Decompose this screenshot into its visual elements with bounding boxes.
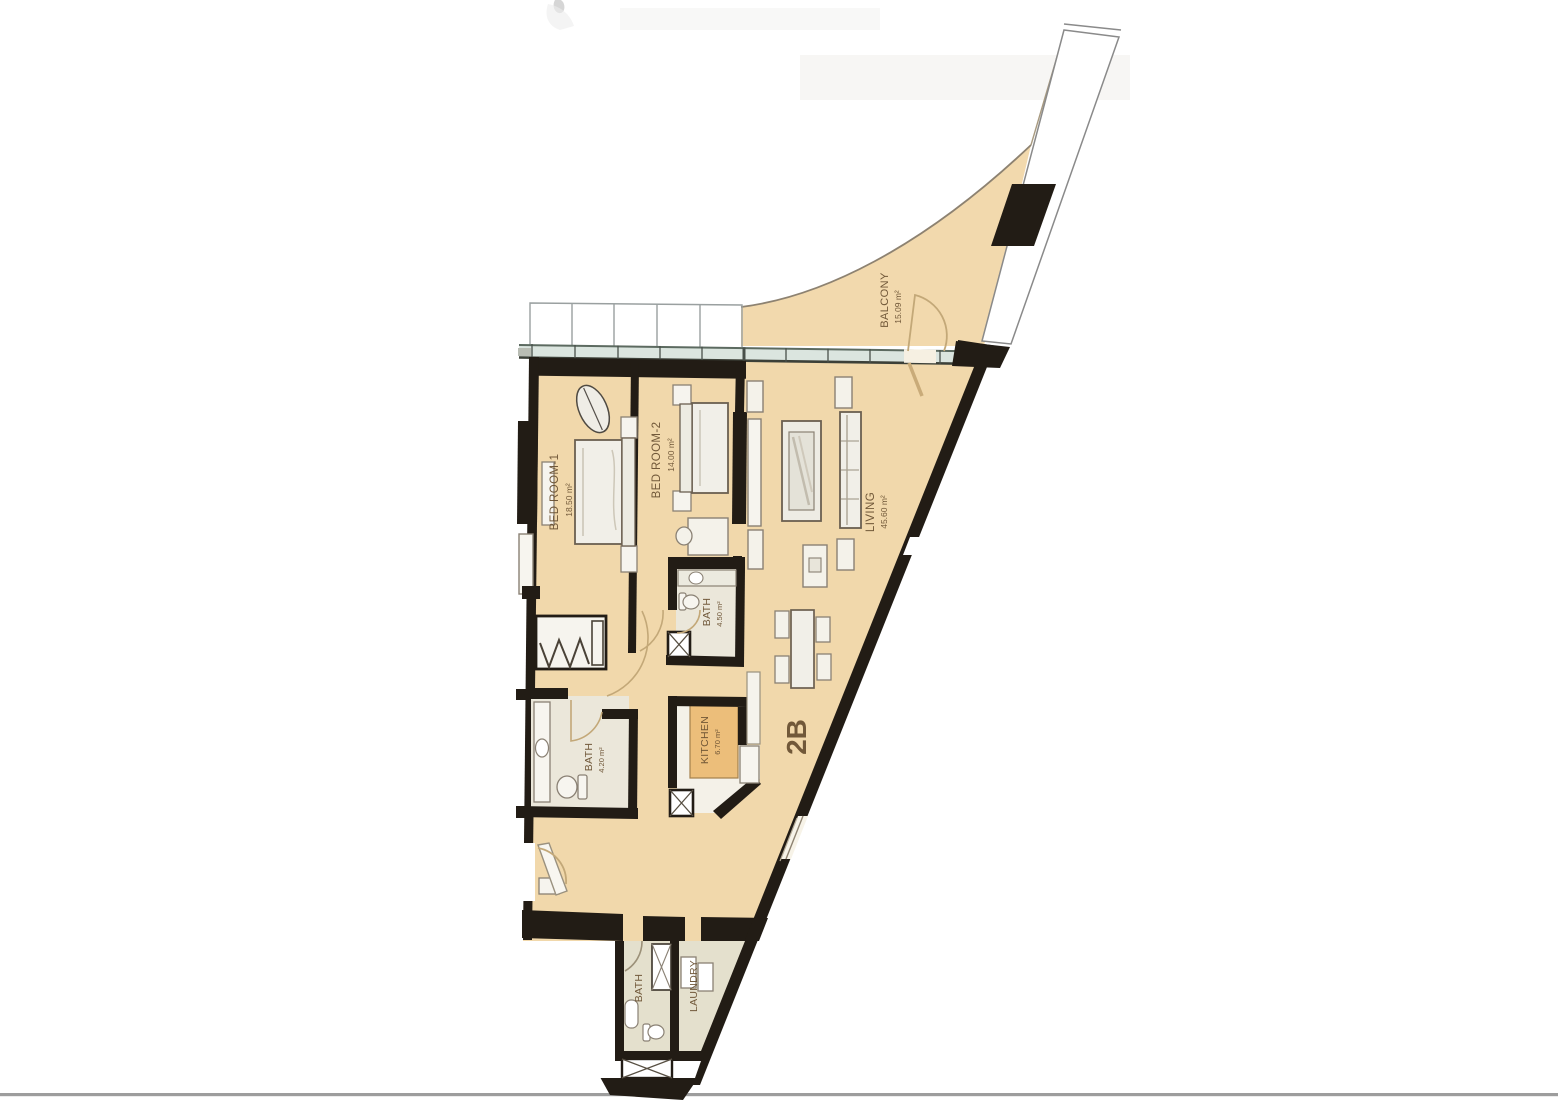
svg-text:BALCONY: BALCONY — [879, 272, 891, 328]
svg-text:6.70 m²: 6.70 m² — [713, 729, 722, 755]
svg-text:KITCHEN: KITCHEN — [699, 716, 711, 764]
svg-text:BATH: BATH — [701, 598, 713, 626]
svg-text:4.20 m²: 4.20 m² — [597, 747, 606, 773]
svg-text:LAUNDRY: LAUNDRY — [688, 960, 700, 1012]
svg-text:BED ROOM-2: BED ROOM-2 — [651, 422, 663, 499]
svg-text:14.00 m²: 14.00 m² — [666, 438, 676, 472]
svg-text:2B: 2B — [781, 719, 812, 755]
svg-text:4.50 m²: 4.50 m² — [715, 601, 724, 627]
svg-text:BED ROOM-1: BED ROOM-1 — [549, 454, 561, 531]
svg-text:45.60 m²: 45.60 m² — [879, 495, 889, 529]
svg-text:BATH: BATH — [633, 974, 645, 1002]
svg-text:LIVING: LIVING — [865, 492, 877, 532]
svg-text:BATH: BATH — [583, 743, 595, 771]
svg-text:18.50 m²: 18.50 m² — [564, 483, 574, 517]
svg-text:15.09 m²: 15.09 m² — [893, 290, 903, 324]
